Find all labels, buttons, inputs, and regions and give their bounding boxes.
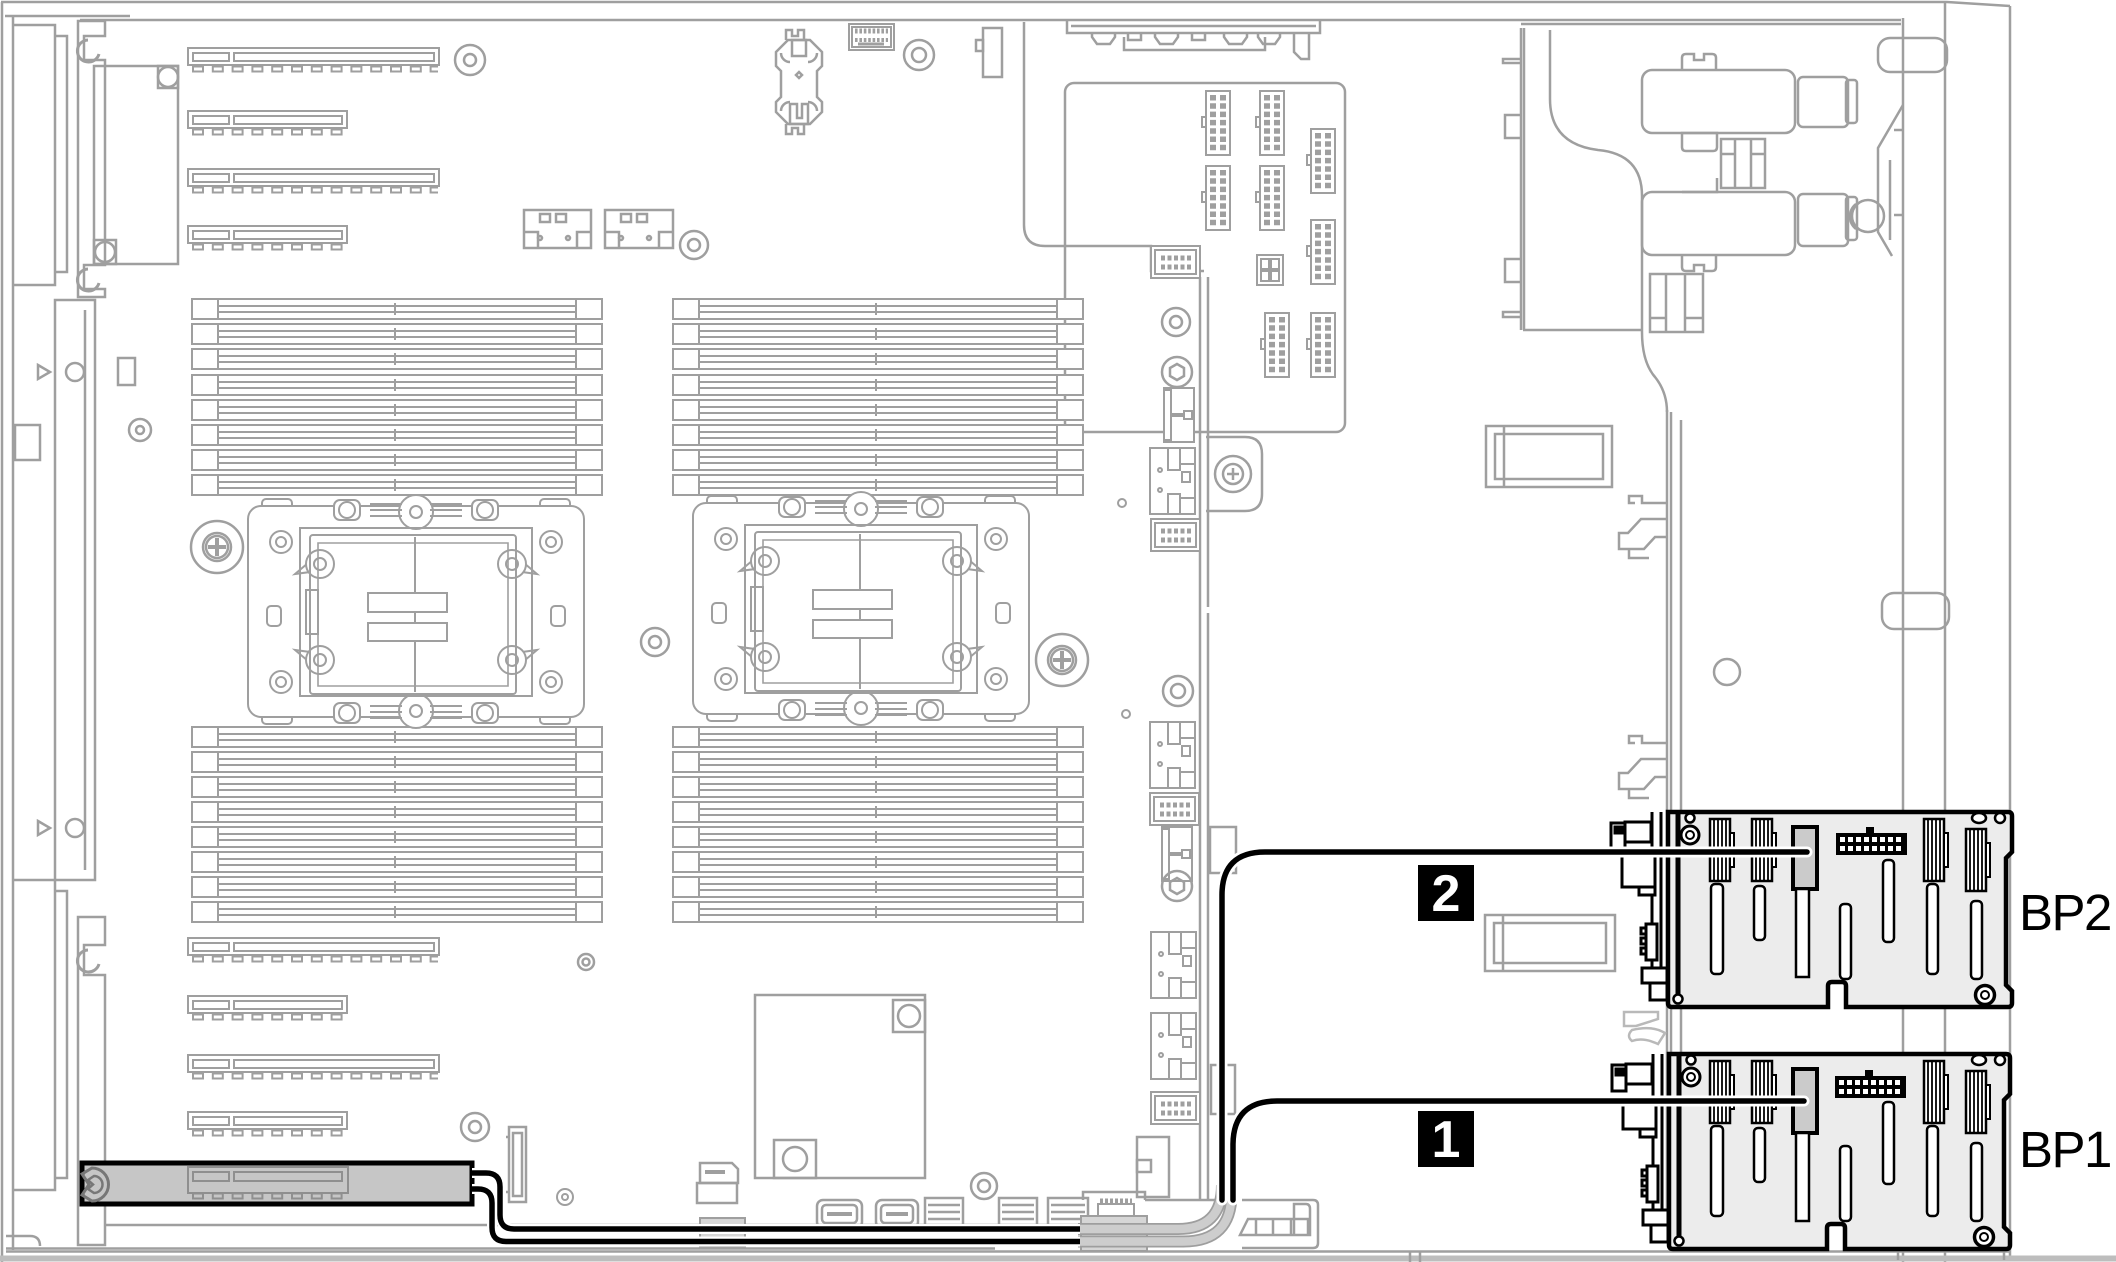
svg-text:1: 1: [1432, 1111, 1461, 1169]
svg-text:BP2: BP2: [2019, 884, 2111, 941]
svg-text:BP1: BP1: [2019, 1121, 2111, 1178]
svg-text:2: 2: [1432, 865, 1461, 923]
